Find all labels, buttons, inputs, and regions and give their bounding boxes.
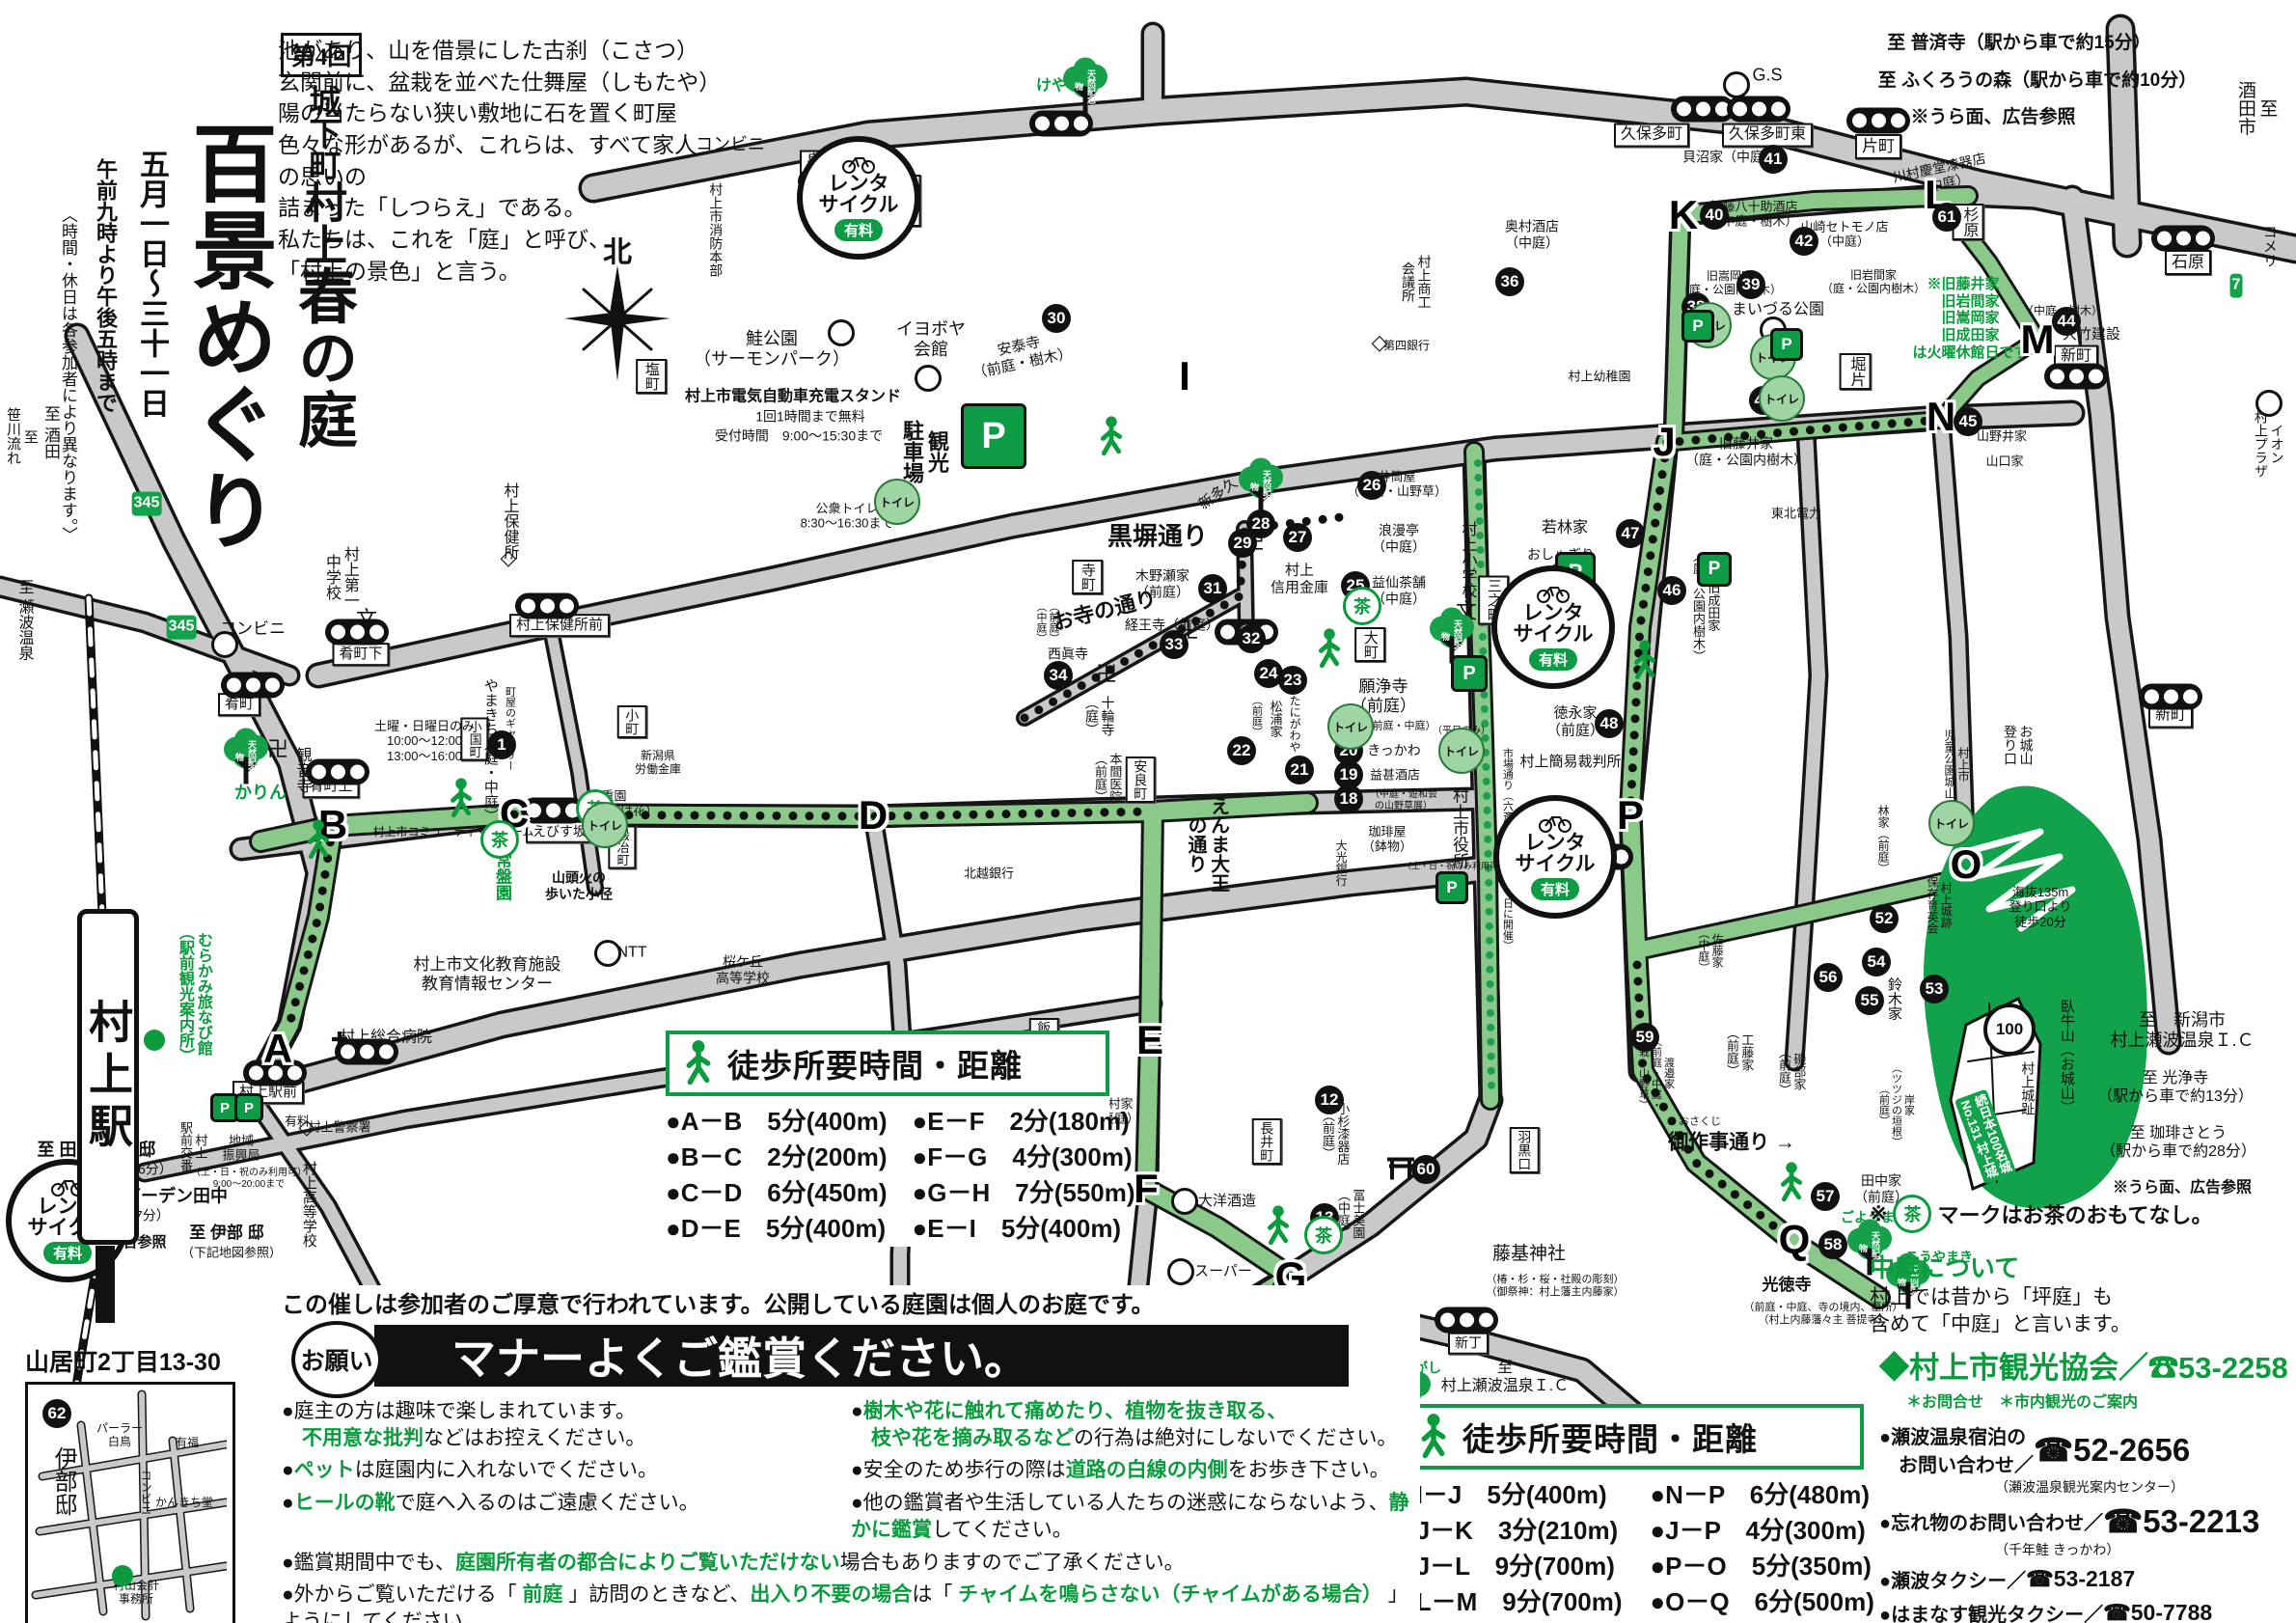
legend-panel: ※ 茶 マークはお茶のおもてなし。 中庭について 村上では昔から「坪庭」も 含め… [1870, 1195, 2284, 1339]
toilet-icon: トイレ [1759, 375, 1805, 422]
traffic-signal-icon [1671, 96, 1735, 123]
bullet-item: ●鑑賞期間中でも、庭園所有者の都合によりご覧いただけない場合もありますのでご了承… [282, 1550, 1420, 1577]
walk-time-table-2: 徒歩所要時間・距離●I－J 5分(400m)●J－K 3分(210m)●J－L … [1401, 1404, 1864, 1623]
stop-number-62: 62 [42, 1399, 71, 1428]
parking-icon: P [1770, 328, 1803, 361]
map-label: 山口家 [1985, 454, 2023, 468]
route-marker-K: K [1669, 192, 1698, 238]
walking-person-icon [1627, 639, 1662, 688]
map-label: 村上高等学校 [300, 1161, 317, 1248]
map-label: 村上簡易裁判所 [1519, 754, 1621, 771]
intro-text: 池があり、山を借景にした古刹（こさつ）玄関前に、盆栽を並べた仕舞屋（しもたや）陽… [278, 35, 712, 287]
murakami-station: 村上駅 [77, 909, 139, 1245]
map-label: 至 瀬波温泉 [14, 579, 33, 660]
landmark-dot-green [144, 1030, 165, 1051]
manner-columns: ●庭主の方は趣味で楽しまれています。 不用意な批判などはお控えください。●ペット… [282, 1398, 1420, 1544]
map-label: 十輪寺 （庭） [1083, 696, 1115, 736]
walk-table-header: 徒歩所要時間・距離 [666, 1031, 1109, 1096]
walk-table-title: 徒歩所要時間・距離 [727, 1040, 1023, 1087]
map-label: 羽黒口 [1510, 1127, 1540, 1173]
parking-icon: P [1697, 552, 1732, 587]
intro-line: 玄関前に、盆栽を並べた仕舞屋（しもたや） [278, 67, 712, 98]
map-label: 山頭火の 歩いた小径 [545, 869, 613, 901]
map-symbol-◇: ◇ [1372, 330, 1388, 355]
stop-number-31: 31 [1198, 574, 1227, 603]
map-symbol-卍: 卍 [1096, 657, 1117, 688]
map-label: 臥牛山（お城山） [2058, 999, 2075, 1114]
tea-icon: 茶 [480, 820, 519, 859]
contact-row: ●瀬波温泉宿泊の お問い合わせ／☎52-2656（瀬波温泉観光案内センター） [1879, 1421, 2289, 1497]
stop-number-100: 100 [1983, 1004, 2036, 1056]
tea-icon: 茶 [1304, 1216, 1343, 1254]
rentacycle-badge: レンタ サイクル有料 [1491, 565, 1615, 689]
nakaniwa-body: 村上では昔から「坪庭」も 含めて「中庭」と言います。 [1870, 1284, 2284, 1339]
map-label: 工藤家 （前庭） [1725, 1027, 1755, 1077]
map-label: 土曜・日曜日のみ 10:00～12:00 13:00～16:00 [374, 719, 475, 763]
tea-note-prefix: ※ [1870, 1201, 1887, 1226]
map-label: 藤基神社 [1492, 1244, 1566, 1265]
map-label: 村上小学校 [1458, 521, 1476, 598]
map-label: 至 村上瀬波温泉Ｉ.Ｃ [1441, 1360, 1569, 1396]
toilet-icon: トイレ [1327, 703, 1374, 750]
manner-bullets-right: ●樹木や花に触れて痛めたり、植物を抜き取る、 枝や花を摘み取るなどの行為は絶対に… [851, 1398, 1420, 1544]
intro-line: 詰まった「しつらえ」である。 [278, 192, 712, 224]
traffic-signal-icon [1727, 96, 1790, 123]
title-hours: 午前九時より午後五時まで [90, 158, 121, 650]
stop-number-48: 48 [1595, 709, 1624, 738]
map-label: 西眞寺 [1048, 646, 1088, 663]
stop-number-36: 36 [1495, 267, 1524, 296]
map-label: 光徳寺 [1763, 1276, 1812, 1295]
map-label: （土・日・祝のみ利用可） [1403, 862, 1507, 872]
walker-icon [679, 1038, 718, 1088]
walk-table-title: 徒歩所要時間・距離 [1462, 1414, 1758, 1460]
tea-note-text: マークはお茶のおもてなし。 [1937, 1198, 2212, 1229]
walk-table-row: ●E－F 2分(180m) [913, 1104, 1135, 1140]
map-symbol-◇: ◇ [299, 1114, 315, 1140]
route-marker-P: P [1617, 792, 1644, 839]
stop-number-39: 39 [1736, 270, 1765, 299]
map-label: 至 光浄寺 （駅から車で約13分） [2097, 1070, 2254, 1107]
route-marker-Q: Q [1779, 1217, 1811, 1263]
stop-number-21: 21 [1285, 756, 1314, 784]
map-label: 村上 駅前交番 [178, 1121, 208, 1171]
map-label: 長井町 [1252, 1118, 1282, 1165]
manner-banner: マナーよくご鑑賞ください。 [374, 1325, 1349, 1387]
walk-table-row: ●N－P 6分(480m) [1650, 1477, 1873, 1513]
map-label: 松浦家 [1268, 701, 1282, 738]
stop-number-46: 46 [1657, 576, 1686, 605]
map-label: 小町 [617, 705, 647, 738]
map-label: 大洋酒造 [1198, 1193, 1256, 1210]
walking-person-icon [1261, 1204, 1296, 1253]
route-marker-I: I [1179, 353, 1190, 399]
bullet-item: ●安全のため歩行の際は道路の白線の内側をお歩き下さい。 [851, 1457, 1420, 1484]
map-label: 第四銀行 [1383, 339, 1430, 352]
landmark-dot [1171, 1188, 1198, 1215]
bullet-item: ●樹木や花に触れて痛めたり、植物を抜き取る、 枝や花を摘み取るなどの行為は絶対に… [851, 1398, 1420, 1451]
tea-mark-note: ※ 茶 マークはお茶のおもてなし。 [1870, 1195, 2284, 1233]
map-label: 村上市文化教育施設 教育情報センター [414, 955, 561, 994]
stop-number-40: 40 [1700, 201, 1729, 230]
tea-icon: 茶 [1893, 1195, 1931, 1233]
map-label: 観光 駐車場 [899, 420, 949, 483]
map-label: （椿・杉・桜・社殿の彫刻） （御祭神：村上藩主内藤家） [1487, 1274, 1625, 1299]
map-label: 続日本100名城 No.131 村上城 [1954, 1089, 2016, 1185]
inset-label: 有福 [176, 1436, 199, 1449]
map-label: 木野瀬家 （前庭） [1135, 567, 1189, 599]
intro-line: 色々な形があるが、これらは、すべて家人の思いの [278, 129, 712, 192]
parking-icon: P [1681, 310, 1714, 343]
route-marker-D: D [859, 792, 888, 839]
stop-number-32: 32 [1237, 624, 1266, 653]
map-label: 安泰寺 （前庭・樹木） [968, 328, 1074, 382]
contact-row: ●瀬波タクシー／☎53-2187 [1879, 1565, 2289, 1593]
stop-number-45: 45 [1954, 407, 1982, 436]
map-label: 大町 [1354, 627, 1385, 662]
intro-line: 池があり、山を借景にした古刹（こさつ） [278, 35, 712, 67]
traffic-signal-icon [1846, 108, 1910, 134]
stop-number-44: 44 [2052, 307, 2081, 336]
map-label: 旧藤井家 （庭・公園内樹木） [1685, 435, 1807, 467]
walk-table-row: ●A－B 5分(400m) [666, 1104, 888, 1140]
inset-label: かんきち堂 [155, 1496, 213, 1509]
map-symbol-◇: ◇ [501, 545, 517, 570]
walk-table-row: ●Q－F 5分(400m) [1650, 1620, 1873, 1623]
walk-table-row: ●P－O 5分(350m) [1650, 1549, 1873, 1584]
inset-label: パーラー 白鳥 [96, 1421, 143, 1448]
map-label: 堀片 [1840, 353, 1872, 390]
map-label: 至 伊部 邸 [189, 1224, 263, 1243]
map-label: 本間医院 （前庭） [1093, 753, 1123, 803]
walk-table-rows: ●I－J 5分(400m)●J－K 3分(210m)●J－L 9分(700m)●… [1401, 1470, 1864, 1623]
map-label: 北越銀行 [964, 866, 1014, 880]
walk-time-table-1: 徒歩所要時間・距離●A－B 5分(400m)●B－C 2分(200m)●C－D … [666, 1031, 1109, 1247]
map-label: 村上幼稚園 [1568, 369, 1630, 383]
traffic-signal-icon [515, 593, 579, 619]
map-label: 若林家 [1542, 520, 1588, 538]
bullet-item: ●他の鑑賞者や生活している人たちの迷惑にならないよう、静かに鑑賞してください。 [851, 1490, 1420, 1543]
inset-address: 山居町2丁目13-30 [25, 1343, 235, 1378]
map-label: 鈴木家 [1885, 977, 1902, 1021]
landmark-dot [2255, 390, 2282, 417]
landmark-dot [1167, 1258, 1194, 1285]
contacts-panel: ◆村上市観光協会／☎53-2258 ＊お問合せ ＊市内観光のご案内 ●瀬波温泉宿… [1879, 1343, 2289, 1623]
stop-number-22: 22 [1227, 736, 1256, 765]
toilet-icon: トイレ [1438, 728, 1485, 774]
map-label: おさくじ [1679, 1116, 1721, 1129]
map-label: 黒塀通り [1107, 522, 1208, 552]
route-marker-E: E [1136, 1017, 1163, 1063]
stop-number-24: 24 [1254, 659, 1283, 688]
tea-icon: 茶 [1343, 587, 1381, 625]
stop-number-42: 42 [1790, 227, 1818, 256]
route-marker-M: M [2021, 316, 2055, 363]
title-note: 〈時間・休日は各参加者により異なります。〉 [56, 206, 80, 650]
map-label: きっかわ [1367, 743, 1420, 759]
traffic-signal-icon [2139, 684, 2202, 710]
traffic-signal-icon [221, 673, 285, 699]
map-label: 至 普済寺（駅から車で約15分） [1887, 33, 2150, 54]
station-label: 村上駅 [76, 999, 140, 1155]
map-label: えんま大王 の通り [1183, 796, 1228, 893]
map-label: （中庭・遊和会 の山野草展） [1370, 789, 1437, 812]
walk-table-rows: ●A－B 5分(400m)●B－C 2分(200m)●C－D 6分(450m)●… [666, 1096, 1109, 1247]
stop-number-55: 55 [1855, 986, 1884, 1015]
map-label: 常盤園 [492, 852, 511, 901]
toilet-icon: トイレ [874, 479, 920, 525]
intro-line: 「村上の景色」と言う。 [278, 256, 712, 288]
walking-person-icon [1774, 1161, 1809, 1210]
walk-table-row: ●I－J 5分(400m) [1401, 1477, 1625, 1513]
walk-table-header: 徒歩所要時間・距離 [1401, 1404, 1864, 1470]
map-label: 石原 [2165, 250, 2211, 275]
map-label: 至 珈琲さとう （駅から車で約28分） [2100, 1125, 2256, 1162]
inset-map: 山居町2丁目13-30 伊部邸パーラー 白鳥有福コンビニかんきち堂村山会計 事務… [25, 1343, 235, 1623]
request-badge: お願い [291, 1321, 382, 1398]
walking-person-icon [301, 818, 336, 867]
route-marker-N: N [1927, 394, 1955, 440]
contact-row: ●はまなす観光タクシー／☎50-7788 [1879, 1599, 2289, 1623]
map-label: お城山 登り口 [2002, 725, 2034, 765]
map-label: スーパー [1194, 1263, 1252, 1280]
stop-number-26: 26 [1357, 471, 1386, 500]
parking-icon: P [234, 1093, 263, 1122]
bullet-item: ●ヒールの靴で庭へ入るのはご遠慮ください。 [282, 1490, 822, 1517]
parking-icon: P [961, 403, 1026, 469]
manner-intro: この催しは参加者のご厚意で行われています。公開している庭園は個人のお庭です。 [282, 1285, 1420, 1319]
rentacycle-badge: レンタ サイクル有料 [797, 136, 920, 260]
route-marker-J: J [1653, 419, 1675, 465]
walking-person-icon [1094, 415, 1129, 464]
manner-bullets-left: ●庭主の方は趣味で楽しまれています。 不用意な批判などはお控えください。●ペット… [282, 1398, 822, 1544]
map-label: 浪漫亭 （中庭） [1372, 522, 1426, 554]
walk-table-row: ●O－Q 6分(500m) [1650, 1584, 1873, 1620]
stop-number-56: 56 [1814, 963, 1843, 992]
traffic-signal-icon [2044, 364, 2108, 390]
map-label: 岸家 （ツツジの垣根） （前庭） [1877, 1062, 1915, 1147]
route-marker-A: A [263, 1026, 292, 1072]
map-label: 東北電力 [1771, 506, 1821, 520]
map-label: 至 酒田市 [2234, 81, 2278, 136]
natural-monument-tree-icon: 天然記念物 [1234, 458, 1288, 523]
tourism-association-sub: ＊お問合せ ＊市内観光のご案内 [1906, 1389, 2289, 1412]
inset-label: 伊部邸 [49, 1446, 76, 1516]
stop-number-52: 52 [1870, 904, 1899, 933]
map-label: 鮭公園 （サーモンパーク） [694, 329, 850, 370]
map-label: 村上 信用金庫 [1271, 562, 1328, 595]
landmark-dot [828, 319, 855, 346]
map-label: コメリ [2260, 225, 2278, 268]
map-label: 村上城跡 保存育英会 [1926, 876, 1953, 934]
walk-table-row: ●J－L 9分(700m) [1401, 1549, 1625, 1584]
map-label: 至 新潟市 村上瀬波温泉Ｉ.Ｃ [2110, 1010, 2254, 1051]
stop-number-57: 57 [1811, 1182, 1840, 1211]
map-label: 桜ケ丘 高等学校 [716, 953, 770, 985]
map-label: 7 [2230, 274, 2243, 298]
walking-person-icon [444, 777, 478, 826]
stop-number-29: 29 [1228, 529, 1257, 558]
murakami-spring-garden-tour-map: 至 普済寺（駅から車で約15分）至 ふくろうの森（駅から車で約10分）※うら面、… [0, 0, 2296, 1623]
map-label: 塩町 [636, 359, 667, 394]
map-label: （前庭） （中庭） [1034, 601, 1059, 644]
map-label: イオン 村上プラザ [2253, 410, 2284, 478]
map-label: NTT [616, 945, 646, 963]
map-label: 林家（前庭） [1876, 805, 1890, 874]
walker-icon [1414, 1412, 1453, 1462]
stop-number-41: 41 [1759, 145, 1788, 174]
map-label: 至 ふくろうの森（駅から車で約10分） [1878, 70, 2197, 92]
walk-table-row: ●M－N 4分(350m) [1401, 1620, 1625, 1623]
map-label: 益甚酒店 [1370, 767, 1420, 782]
nakaniwa-title: 中庭について [1870, 1249, 2284, 1284]
traffic-signal-icon [335, 1039, 398, 1065]
landmark-dot [594, 940, 621, 967]
natural-monument-tree-icon: 天然記念物 [219, 729, 273, 793]
torii-icon [1384, 1154, 1417, 1186]
walk-table-row: ●D－E 5分(400m) [666, 1211, 888, 1247]
map-label: 寺町 [1072, 560, 1103, 594]
intro-line: 陽の当たらない狭い敷地に石を置く町屋 [278, 97, 712, 129]
walk-table-row: ●F－G 4分(300m) [913, 1140, 1135, 1175]
map-label: 村上商工 会議所 [1400, 255, 1432, 309]
map-label: 安良町 [1126, 756, 1156, 803]
stop-number-61: 61 [1932, 203, 1961, 232]
natural-monument-tree-icon: 天然記念物 [1058, 58, 1112, 123]
map-label: たにがわや [1288, 695, 1301, 753]
map-label: ※うら面、広告参照 [1910, 107, 2075, 128]
toilet-icon: トイレ [582, 802, 628, 848]
walk-table-row: ●B－C 2分(200m) [666, 1140, 888, 1175]
map-label: 受付時間 9:00～15:30まで [715, 428, 883, 445]
stop-number-54: 54 [1862, 948, 1891, 977]
toilet-icon: トイレ [1928, 800, 1975, 846]
map-label: 久保多町東 [1722, 124, 1813, 148]
contact-rows: ●瀬波温泉宿泊の お問い合わせ／☎52-2656（瀬波温泉観光案内センター）●忘… [1879, 1421, 2289, 1623]
traffic-signal-icon [1435, 1307, 1498, 1334]
inset-location-dot [112, 1565, 133, 1586]
traffic-signal-icon [306, 759, 369, 785]
walk-table-row: ●C－D 6分(450m) [666, 1175, 888, 1211]
parking-icon: P [1451, 655, 1488, 692]
map-label: 佐藤家 （中庭） [1697, 927, 1724, 974]
map-label: 山野井家 [1977, 428, 2027, 443]
map-label: 地域 振興局 [222, 1134, 260, 1164]
manner-banner-row: お願い マナーよくご鑑賞ください。 [282, 1325, 1420, 1389]
landmark-dot [1723, 71, 1750, 98]
map-label: 片町 [1855, 134, 1901, 159]
intro-line: 私たちは、これを「庭」と呼び、 [278, 224, 712, 256]
walking-person-icon [1312, 627, 1347, 676]
manner-panel: この催しは参加者のご厚意で行われています。公開している庭園は個人のお庭です。 お… [282, 1285, 1420, 1623]
stop-number-12: 12 [1315, 1086, 1344, 1114]
stop-number-30: 30 [1042, 304, 1071, 333]
title-main: 百景めぐり [183, 120, 268, 650]
manner-bullets-wide: ●鑑賞期間中でも、庭園所有者の都合によりご覧いただけない場合もありますのでご了承… [282, 1550, 1420, 1623]
map-label: 新潟県 労働金庫 [635, 749, 681, 776]
map-label: 村上市 児童公園城山 [1943, 729, 1970, 799]
stop-number-34: 34 [1044, 661, 1073, 690]
map-label: G.S [1752, 65, 1782, 85]
landmark-dot [915, 365, 942, 392]
map-label: 新丁 [1448, 1333, 1489, 1355]
walk-table-row: ●L－M 9分(700m) [1401, 1584, 1625, 1620]
stop-number-27: 27 [1283, 523, 1312, 552]
bullet-item: ●ペットは庭園内に入れないでください。 [282, 1457, 822, 1484]
map-label: 御作事通り → [1668, 1132, 1795, 1156]
route-marker-O: O [1951, 841, 1982, 888]
map-label: （下記地図参照） [181, 1245, 282, 1259]
map-label: ※旧藤井家 旧岩間家 旧嵩岡家 旧成田家 は火曜休館日です [1898, 276, 2028, 361]
walk-table-row: ●J－K 3分(210m) [1401, 1513, 1625, 1549]
route-marker-F: F [1134, 1166, 1159, 1212]
map-label: 大光銀行 [1334, 839, 1348, 886]
bullet-item: ●庭主の方は趣味で楽しまれています。 不用意な批判などはお控えください。 [282, 1398, 822, 1451]
stop-number-59: 59 [1630, 1023, 1659, 1052]
stop-number-33: 33 [1160, 630, 1189, 659]
stop-number-53: 53 [1920, 975, 1949, 1004]
traffic-signal-icon [521, 798, 585, 824]
inset-label: コンビニ [139, 1470, 152, 1516]
contact-row: ●忘れ物のお問い合わせ／☎53-2213（千年鮭 きっかわ） [1879, 1502, 2289, 1559]
map-label: 珈琲屋 （鉢物） [1362, 825, 1412, 855]
map-label: むらかみ旅なび館 （駅前観光案内所） [175, 924, 211, 1063]
stop-number-47: 47 [1616, 519, 1645, 548]
map-label: 至 笹川流れ [4, 407, 38, 465]
map-label: 村上市電気自動車充電スタンド [685, 389, 901, 407]
walk-table-row: ●E－I 5分(400m) [913, 1211, 1135, 1247]
title-spring-garden: 春の庭 [278, 265, 365, 451]
map-label: 村上市役所 [1449, 787, 1468, 869]
map-label: イヨボヤ 会館 [896, 319, 966, 360]
tourism-association-heading: ◆村上市観光協会／☎53-2258 [1879, 1343, 2289, 1387]
parking-icon: P [1435, 871, 1468, 904]
rentacycle-badge: レンタ サイクル有料 [1493, 795, 1617, 919]
map-label: 奥村酒店 （中庭） [1505, 218, 1559, 250]
walk-table-row: ●G－H 7分(550m) [913, 1175, 1135, 1211]
bullet-item: ●外からご覧いただける「 前庭 」訪問のときなど、出入り不要の場合は「 チャイム… [282, 1582, 1420, 1623]
walk-table-row: ●J－P 4分(300m) [1650, 1513, 1873, 1549]
stop-number-1: 1 [487, 730, 516, 759]
map-label: 村上城趾 [2020, 1061, 2036, 1115]
map-label: 海抜135m 登り口より 徒歩20分 [2009, 885, 2072, 929]
traffic-signal-icon [2151, 226, 2215, 252]
map-label: 1回1時間まで無料 [755, 409, 865, 426]
map-label: （前庭） [1250, 695, 1263, 737]
map-label: 久保多町 [1614, 124, 1689, 148]
map-label: 村上警察署 [308, 1119, 370, 1134]
title-dates: 五月一日～三十一日 [130, 149, 174, 650]
map-label: 磯部家 （前庭） [1777, 1046, 1807, 1096]
inset-map-box: 伊部邸パーラー 白鳥有福コンビニかんきち堂村山会計 事務所62 [25, 1382, 235, 1623]
